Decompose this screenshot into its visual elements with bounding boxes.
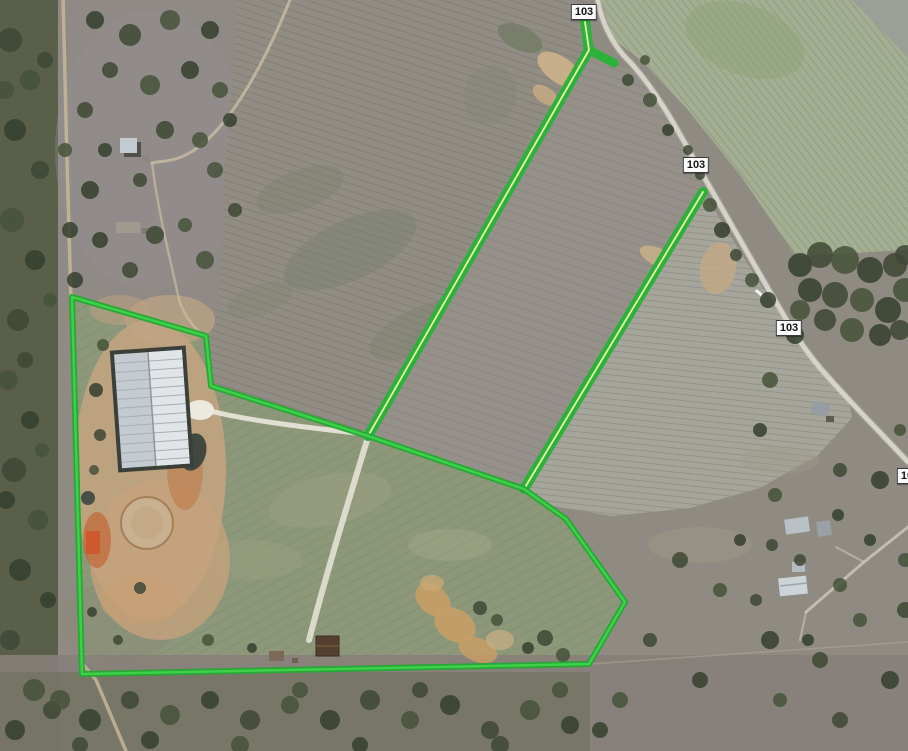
route-103-marker: 103: [897, 468, 908, 484]
tree-icon: [196, 251, 214, 269]
tree-icon: [790, 300, 810, 320]
tree-icon: [97, 339, 109, 351]
tree-icon: [98, 143, 112, 157]
tree-icon: [140, 75, 160, 95]
tree-icon: [561, 716, 579, 734]
tree-icon: [28, 510, 48, 530]
tree-icon: [0, 208, 24, 232]
tree-icon: [833, 578, 847, 592]
tree-icon: [761, 631, 779, 649]
tree-icon: [802, 634, 814, 646]
tree-icon: [0, 630, 20, 650]
tree-icon: [881, 671, 899, 689]
tree-icon: [520, 700, 540, 720]
tree-icon: [833, 463, 847, 477]
tree-icon: [832, 509, 844, 521]
tree-icon: [491, 614, 503, 626]
tree-icon: [556, 648, 570, 662]
tree-icon: [160, 10, 180, 30]
tree-icon: [43, 293, 57, 307]
tree-icon: [750, 594, 762, 606]
tree-icon: [81, 181, 99, 199]
barn: [110, 346, 194, 473]
scrub-tint: [55, 10, 245, 290]
tree-icon: [4, 119, 26, 141]
tree-icon: [875, 297, 901, 323]
route-103-label: 103: [687, 159, 705, 171]
tree-icon: [730, 249, 742, 261]
tree-icon: [734, 534, 746, 546]
tree-icon: [37, 52, 53, 68]
tree-icon: [146, 226, 164, 244]
tree-icon: [228, 203, 242, 217]
tree-icon: [25, 250, 45, 270]
tree-icon: [672, 552, 688, 568]
tree-icon: [133, 173, 147, 187]
tree-icon: [40, 592, 56, 608]
tree-icon: [21, 411, 39, 429]
tree-icon: [831, 246, 859, 274]
round-pen-center: [131, 507, 163, 539]
tree-icon: [202, 634, 214, 646]
tree-icon: [662, 124, 674, 136]
tree-icon: [713, 583, 727, 597]
tree-icon: [643, 93, 657, 107]
tree-icon: [50, 690, 70, 710]
tree-icon: [7, 309, 29, 331]
tree-icon: [857, 257, 883, 283]
tree-icon: [87, 607, 97, 617]
tree-icon: [832, 712, 848, 728]
tree-icon: [814, 309, 836, 331]
tree-icon: [192, 132, 208, 148]
tree-icon: [102, 62, 118, 78]
tree-icon: [612, 692, 628, 708]
tree-icon: [77, 102, 93, 118]
tree-icon: [440, 695, 460, 715]
satellite-basemap: [0, 0, 908, 751]
tree-icon: [692, 672, 708, 688]
tree-icon: [23, 679, 45, 701]
route-103-marker: 103: [776, 320, 802, 336]
tree-icon: [62, 222, 78, 238]
tree-icon: [178, 218, 192, 232]
tree-icon: [223, 113, 237, 127]
tree-icon: [9, 559, 31, 581]
tree-icon: [122, 262, 138, 278]
tree-icon: [58, 143, 72, 157]
tree-icon: [869, 324, 891, 346]
tree-icon: [67, 272, 83, 288]
tree-icon: [79, 709, 101, 731]
tree-icon: [92, 232, 108, 248]
tree-icon: [871, 471, 889, 489]
tree-icon: [86, 11, 104, 29]
tree-icon: [134, 582, 146, 594]
tree-icon: [640, 55, 650, 65]
tree-icon: [89, 383, 103, 397]
tree-icon: [240, 710, 260, 730]
tree-icon: [552, 682, 568, 698]
tree-icon: [207, 162, 223, 178]
tree-icon: [745, 273, 759, 287]
tree-icon: [119, 24, 141, 46]
tree-icon: [822, 282, 848, 308]
tree-icon: [812, 652, 828, 668]
route-103-label: 103: [780, 322, 798, 334]
tree-icon: [522, 642, 534, 654]
tree-icon: [537, 630, 553, 646]
route-103-marker: 103: [683, 157, 709, 173]
tree-icon: [281, 696, 299, 714]
tree-icon: [714, 222, 730, 238]
tree-icon: [212, 82, 228, 98]
tree-icon: [292, 682, 308, 698]
tree-icon: [412, 682, 428, 698]
tree-icon: [622, 74, 634, 86]
tree-icon: [762, 372, 778, 388]
tree-icon: [5, 720, 25, 740]
tree-icon: [31, 161, 49, 179]
route-103-marker: 103: [571, 4, 597, 20]
tree-icon: [360, 690, 380, 710]
satellite-map-canvas[interactable]: 103 103 103 103: [0, 0, 908, 751]
tree-icon: [794, 554, 806, 566]
tree-icon: [89, 465, 99, 475]
tree-icon: [703, 198, 717, 212]
tree-icon: [401, 711, 419, 729]
small-pond: [81, 491, 95, 505]
tree-icon: [683, 145, 693, 155]
tree-icon: [113, 635, 123, 645]
tree-icon: [773, 693, 787, 707]
tree-icon: [94, 429, 106, 441]
tree-icon: [768, 488, 782, 502]
tree-icon: [760, 292, 776, 308]
tree-icon: [20, 70, 40, 90]
tree-icon: [121, 691, 139, 709]
tree-icon: [2, 458, 26, 482]
tree-icon: [473, 601, 487, 615]
tree-icon: [840, 318, 864, 342]
tree-icon: [201, 21, 219, 39]
tree-icon: [864, 534, 876, 546]
tree-icon: [181, 61, 199, 79]
tree-icon: [894, 424, 906, 436]
tree-icon: [753, 423, 767, 437]
tree-icon: [247, 643, 257, 653]
tree-icon: [798, 278, 822, 302]
route-103-label: 103: [901, 470, 908, 482]
tree-icon: [850, 288, 874, 312]
tree-icon: [156, 121, 174, 139]
tree-icon: [807, 242, 833, 268]
tree-icon: [481, 721, 499, 739]
tree-icon: [320, 710, 340, 730]
tree-icon: [17, 352, 33, 368]
tree-icon: [853, 613, 867, 627]
tree-icon: [643, 633, 657, 647]
tree-icon: [160, 705, 180, 725]
tree-icon: [201, 691, 219, 709]
tree-icon: [35, 443, 49, 457]
tree-icon: [592, 722, 608, 738]
tree-icon: [141, 731, 159, 749]
tree-icon: [766, 539, 778, 551]
orange-container: [86, 531, 100, 554]
route-103-label: 103: [575, 6, 593, 18]
